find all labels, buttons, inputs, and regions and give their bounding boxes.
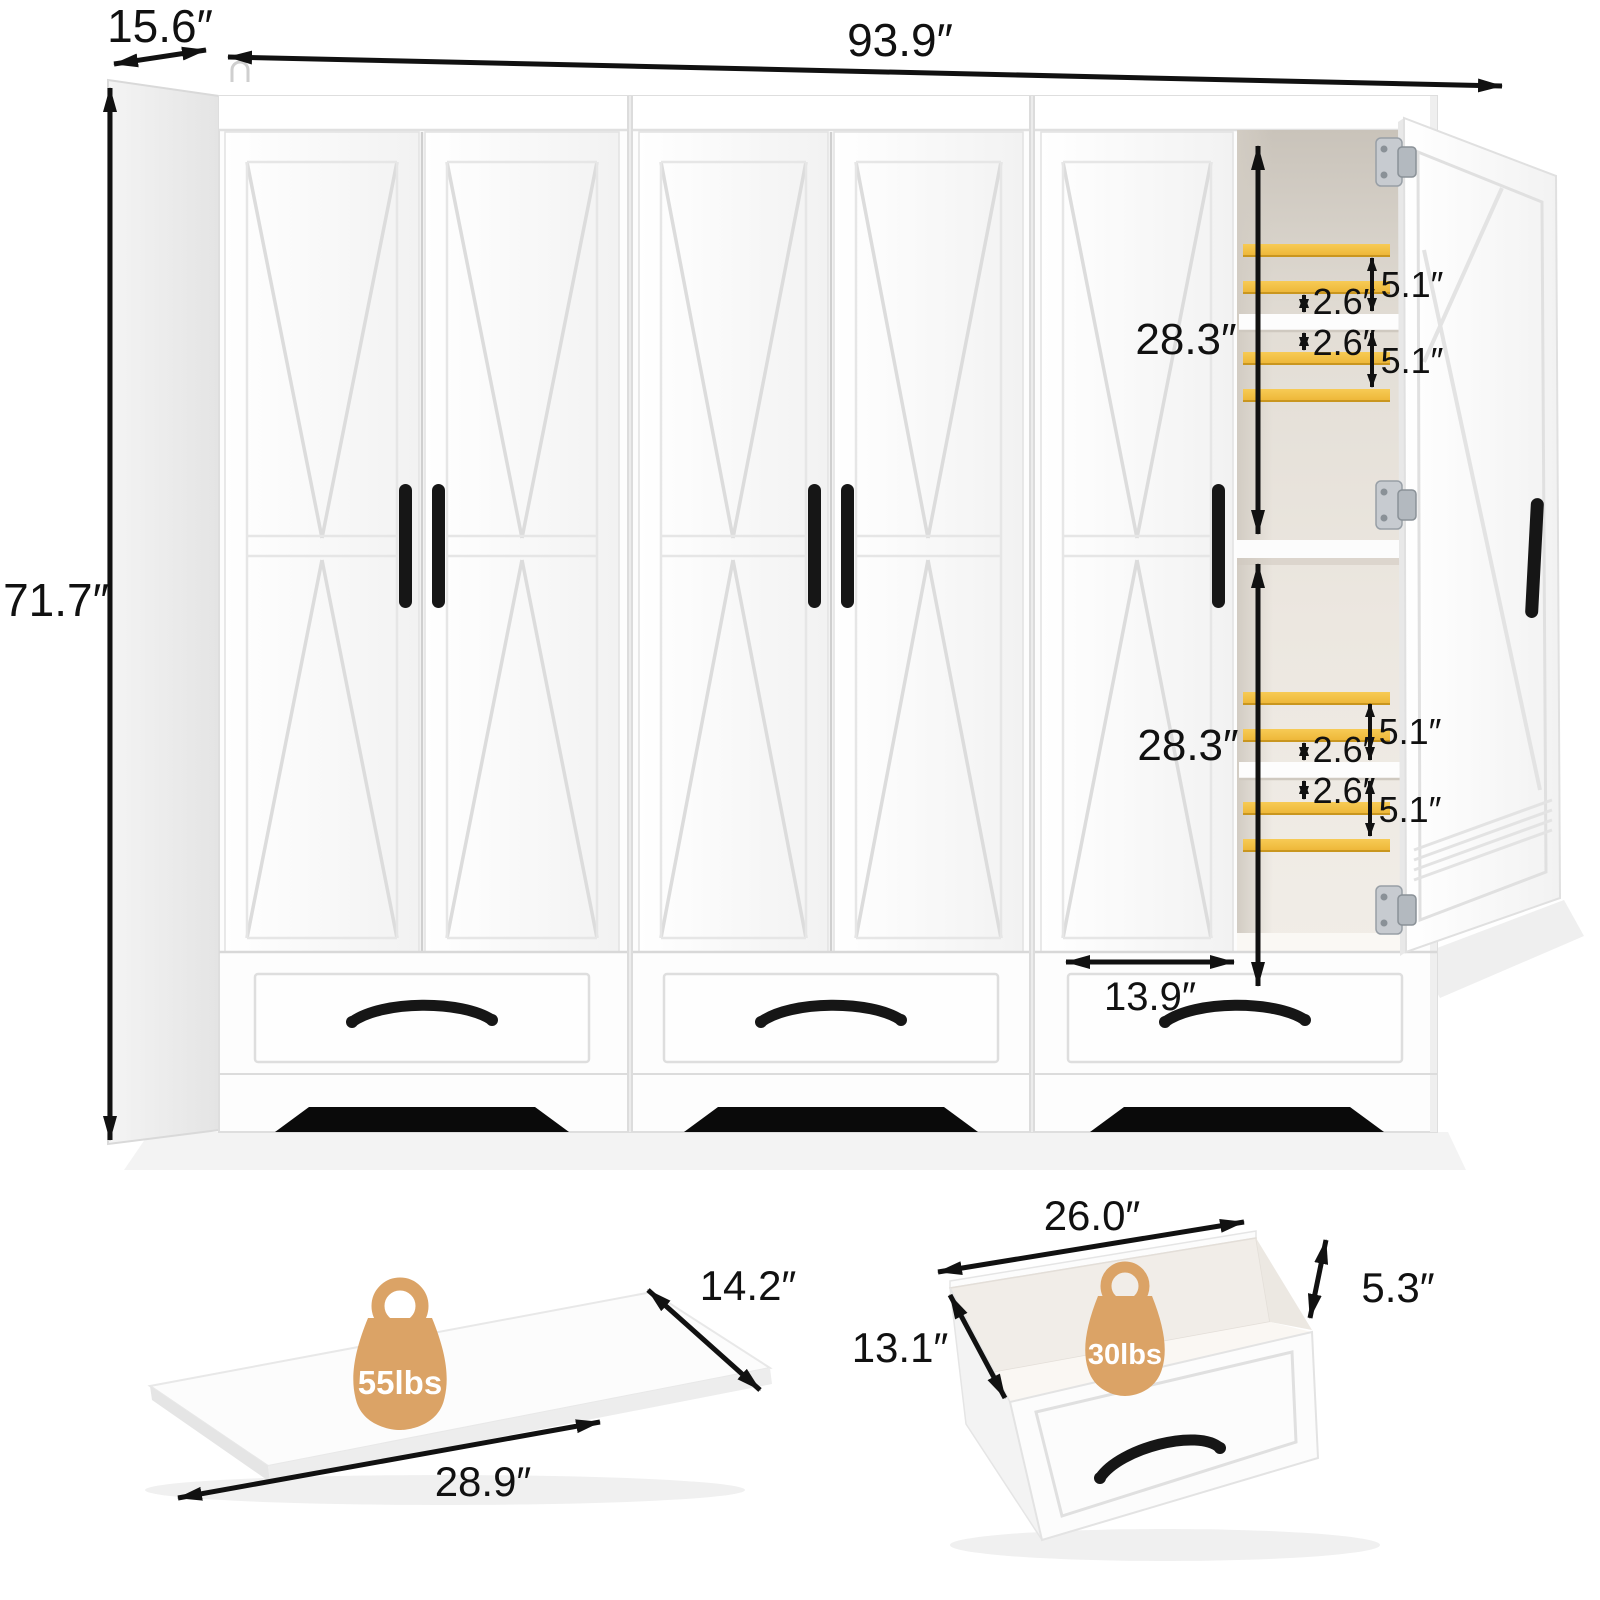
wood-slat (1243, 839, 1390, 851)
drawer-front-panel[interactable] (255, 974, 589, 1062)
gap-label: 5.1″ (1379, 711, 1442, 752)
drawer-handle-foot (755, 1016, 767, 1028)
gap-label: 2.6″ (1313, 729, 1376, 770)
drawer-handle-foot (1299, 1014, 1311, 1026)
wardrobe-floor-shadow (124, 1132, 1466, 1170)
product-dimension-diagram: 93.9″ 15.6″ 71.7″ 28.3″ 28.3″ 5.1″ 2.6″ … (0, 0, 1600, 1600)
plinth-notch (1090, 1107, 1384, 1132)
door-handle[interactable] (432, 484, 445, 608)
drawer-handle-foot (346, 1016, 358, 1028)
depth-dim-label: 15.6″ (107, 0, 213, 52)
drawer-handle-foot (1214, 1442, 1226, 1454)
cabinet-unit-2 (633, 132, 1029, 1132)
weight-capacity-badge: 55lbs (353, 1284, 446, 1430)
barn-door (1041, 132, 1233, 952)
drawer-shadow (950, 1529, 1380, 1561)
anti-tip-hook (232, 62, 248, 82)
gap-label: 5.1″ (1381, 264, 1444, 305)
width-dim-label: 93.9″ (847, 14, 953, 66)
door-handle[interactable] (1212, 484, 1225, 608)
barn-door (834, 132, 1023, 952)
barn-door (639, 132, 828, 952)
plinth-notch (275, 1107, 569, 1132)
plinth-notch (684, 1107, 978, 1132)
drawer-depth-label: 13.1″ (852, 1324, 949, 1371)
bay-width-label: 13.9″ (1104, 975, 1196, 1019)
door-handle[interactable] (808, 484, 821, 608)
wood-slat (1243, 389, 1390, 401)
shelf-board-figure: 55lbs 14.2″ 28.9″ (150, 1262, 796, 1505)
door-handle[interactable] (399, 484, 412, 608)
upper-section-label: 28.3″ (1135, 315, 1236, 364)
drawer-handle-foot (486, 1014, 498, 1026)
open-door[interactable] (1398, 118, 1560, 956)
drawer-front-panel[interactable] (664, 974, 998, 1062)
drawer-box-figure: 30lbs 26.0″ 5.3″ 13.1″ (852, 1192, 1435, 1540)
side-panel (108, 80, 219, 1144)
wardrobe-illustration (108, 62, 1560, 1144)
drawer-width-label: 26.0″ (1044, 1192, 1141, 1239)
board-width-label: 28.9″ (435, 1458, 532, 1505)
gap-label: 5.1″ (1381, 340, 1444, 381)
gap-label: 5.1″ (1379, 789, 1442, 830)
drawer-height-arrow (1310, 1240, 1326, 1318)
cabinet-unit-1 (219, 132, 627, 1132)
wood-slat (1243, 692, 1390, 704)
drawer-height-label: 5.3″ (1361, 1264, 1434, 1311)
divider-shadow (1237, 558, 1412, 565)
barn-door (225, 132, 419, 952)
wood-slat (1243, 244, 1390, 256)
drawer-handle-foot (895, 1014, 907, 1026)
depth-dim-arrow (114, 50, 206, 64)
gap-label: 2.6″ (1313, 281, 1376, 322)
barn-door (425, 132, 619, 952)
board-capacity-label: 55lbs (358, 1364, 442, 1401)
board-depth-label: 14.2″ (700, 1262, 797, 1309)
interior-floor (1237, 933, 1412, 952)
gap-label: 2.6″ (1313, 770, 1376, 811)
drawer-capacity-label: 30lbs (1088, 1339, 1162, 1371)
drawer-handle-foot (1094, 1472, 1106, 1484)
top-band (219, 96, 1437, 130)
divider-shelf (1237, 540, 1412, 558)
lower-section-label: 28.3″ (1137, 721, 1238, 770)
gap-label: 2.6″ (1313, 322, 1376, 363)
door-handle[interactable] (841, 484, 854, 608)
height-dim-label: 71.7″ (3, 574, 109, 626)
